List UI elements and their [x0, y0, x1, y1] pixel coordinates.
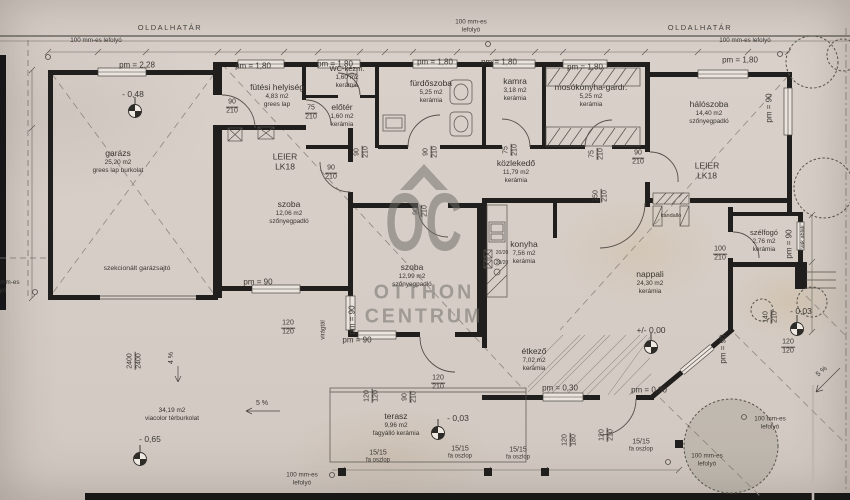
room-floor: fagyálló kerámia	[373, 430, 420, 438]
dim-height: 210	[363, 146, 371, 158]
dim-window-etkezo: 120180	[562, 433, 579, 447]
room-label-wc: WC-kézm.1,60 m2kerámia	[330, 64, 365, 90]
dim-door-mosokonyha: 75210	[589, 148, 606, 160]
dim-opening-terasz: 90210	[402, 391, 419, 403]
parapet-mosokonyha: pm = 1,80	[567, 64, 603, 73]
room-label-kamra: kamra3,18 m2kerámia	[503, 76, 527, 104]
room-area: 5,25 m2	[410, 89, 452, 97]
room-name: mosókonyha-gardr.	[555, 82, 628, 93]
dim-height: 210	[432, 146, 440, 158]
parapet-etkezo-1: pm = 0,30	[542, 385, 578, 394]
level-ground: +/- 0,00	[636, 326, 665, 336]
dim-door-etkezo: 120210	[599, 428, 616, 442]
room-name: garázs	[93, 148, 144, 159]
room-floor: kerámia	[330, 121, 353, 129]
room-label-furdoszoba: fürdőszoba5,25 m2kerámia	[410, 78, 452, 106]
level-terrace: - 0,03	[447, 414, 469, 424]
post-size: 15/15	[366, 450, 390, 458]
wall-note-leier-2: LEIERLK18	[695, 161, 720, 180]
dim-window-szoba2: 120120	[364, 389, 381, 403]
dim-width: 100	[713, 246, 727, 255]
room-area: 3,18 m2	[503, 87, 527, 95]
drain-label-top-right: 100 mm-es lefolyó	[719, 37, 770, 45]
room-name: szoba	[392, 262, 431, 273]
fireplace-label: kandalló	[661, 213, 682, 219]
flower-box-label: virágtál	[321, 320, 328, 339]
room-label-nappali: nappali24,30 m2kerámia	[636, 269, 663, 297]
room-label-futesi: fütési helyiség4,83 m2grees lap	[250, 82, 304, 110]
room-name: konyha	[510, 239, 537, 250]
room-area: 24,30 m2	[636, 280, 663, 288]
dim-height: 210	[608, 428, 616, 442]
slope-4-label: 4 %	[168, 352, 176, 364]
room-name: WC-kézm.	[330, 64, 365, 74]
dim-width: 120	[364, 389, 373, 403]
post-label-4: 15/15fa oszlop	[629, 439, 653, 454]
room-label-garazs: garázs25,20 m2grees lap burkolat	[93, 148, 144, 176]
dim-width: 120	[781, 339, 795, 348]
parapet-nappali-diag: pm = 90	[720, 334, 729, 363]
room-name: nappali	[636, 269, 663, 280]
dim-height: 180	[571, 433, 579, 447]
parapet-futesi: pm = 1,80	[235, 63, 271, 72]
room-label-szelfogo: szélfogó2,76 m2kerámia	[750, 228, 778, 254]
room-label-szoba2: szoba12,99 m2szőnyegpadló	[392, 262, 431, 290]
room-name: szélfogó	[750, 228, 778, 238]
post-label-3: 15/15fa oszlop	[506, 447, 530, 462]
room-area: 12,06 m2	[269, 210, 308, 218]
dim-height: 210	[411, 391, 419, 403]
dim-width: 75	[305, 105, 317, 114]
dim-door-garage-futesi: 90210	[226, 99, 238, 116]
room-floor: viacolor térburkolat	[145, 415, 199, 423]
dim-height: 210	[632, 159, 644, 167]
room-area: 12,99 m2	[392, 273, 431, 281]
room-label-etkezo: étkező7,02 m2kerámia	[521, 346, 546, 374]
post-size: 15/15	[448, 446, 472, 454]
dim-height: 210	[602, 189, 610, 203]
room-name: fütési helyiség	[250, 82, 304, 93]
dim-height: 210	[713, 255, 727, 263]
slope-5-label-left: 5 %	[256, 400, 268, 408]
dim-height: 210	[431, 384, 445, 392]
parapet-kamra: pm = 1,80	[481, 59, 517, 68]
drain-line2: lefolyó	[455, 26, 487, 34]
parapet-haloszoba: pm = 1,80	[722, 57, 758, 66]
post-label-2: 15/15fa oszlop	[448, 446, 472, 461]
dim-height: 210	[772, 310, 780, 324]
dim-width: 90	[226, 99, 238, 108]
room-name: terasz	[373, 411, 420, 422]
dim-width: 2400	[127, 352, 136, 370]
room-name: fürdőszoba	[410, 78, 452, 89]
room-name: előtér	[330, 102, 353, 113]
room-floor: kerámia	[636, 288, 663, 296]
dim-width: 120	[281, 320, 295, 329]
room-area: 25,20 m2	[93, 159, 144, 167]
level-entry: - 0,03	[790, 307, 812, 317]
level-garage: - 0,48	[122, 90, 144, 100]
dim-window-diag: 120120	[781, 339, 795, 356]
room-floor: szőnyegpadló	[269, 218, 308, 226]
blind-window-label: vak ablak	[800, 225, 806, 248]
room-floor: kerámia	[510, 258, 537, 266]
pillar-label-1: 20/20	[496, 251, 509, 257]
drain-label-bottom-left: 100 mm-eslefolyó	[286, 471, 318, 486]
room-floor: grees lap burkolat	[93, 167, 144, 175]
dim-width: 140	[763, 310, 772, 324]
watermark-house-icon	[400, 164, 448, 190]
dim-width: 90	[632, 150, 644, 159]
dim-height: 210	[512, 144, 520, 156]
room-label-eloter: előtér1,60 m2kerámia	[330, 102, 353, 130]
dim-opening-eloter: 90210	[354, 146, 371, 158]
dim-height: 210	[226, 108, 238, 116]
drain-label-top-center: 100 mm-eslefolyó	[455, 18, 487, 33]
parapet-szelfogo: pm = 90	[786, 229, 795, 258]
parapet-furdo: pm = 1,80	[417, 59, 453, 68]
post-size: 15/15	[506, 447, 530, 455]
dim-width: 90	[354, 146, 363, 158]
post-size: 15/15	[629, 439, 653, 447]
parapet-szoba1: pm = 90	[243, 279, 272, 288]
room-area: 7,56 m2	[510, 250, 537, 258]
wall-note-leier-1: LEIERLK18	[273, 152, 298, 171]
room-area: 11,79 m2	[497, 169, 535, 177]
dim-height: 2400	[136, 352, 144, 370]
drain-line1: 100 mm-es	[286, 471, 318, 479]
dim-width: 120	[431, 375, 445, 384]
drain-line2: lefolyó	[0, 287, 20, 295]
drain-line1: 100 mm-es	[455, 18, 487, 26]
room-floor: grees lap	[250, 101, 304, 109]
leier-type: LK18	[695, 171, 720, 181]
room-floor: kerámia	[555, 101, 628, 109]
room-label-terasz: terasz9,96 m2fagyálló kerámia	[373, 411, 420, 439]
dim-door-terasz: 120210	[431, 375, 445, 392]
room-floor: kerámia	[750, 246, 778, 254]
drain-line1: 100 mm-es	[754, 415, 786, 423]
room-floor: kerámia	[410, 97, 452, 105]
room-area: 34,19 m2	[145, 407, 199, 415]
dim-height: 210	[422, 205, 430, 217]
dim-door-furdo: 90210	[423, 146, 440, 158]
dim-height: 210	[305, 114, 317, 122]
dim-garage-door: 24002400	[127, 352, 144, 370]
room-label-szoba1: szoba12,06 m2szőnyegpadló	[269, 199, 308, 227]
dim-height: 120	[373, 389, 381, 403]
parapet-etkezo-2: pm = 0,30	[631, 387, 667, 396]
room-floor: kerámia	[497, 177, 535, 185]
dim-width: 90	[413, 205, 422, 217]
drain-label-left: 100 mm-eslefolyó	[0, 279, 20, 294]
dim-height: 120	[281, 329, 295, 337]
room-area: 4,83 m2	[250, 93, 304, 101]
dim-height: 210	[598, 148, 606, 160]
dim-width: 90	[423, 146, 432, 158]
room-floor: kerámia	[521, 365, 546, 373]
parapet-szoba2-west: pm = 90	[349, 305, 358, 334]
room-floor: szőnyegpadló	[689, 118, 728, 126]
dim-height: 120	[781, 348, 795, 356]
boundary-label-right: OLDALHATÁR	[668, 24, 732, 32]
room-area: 7,02 m2	[521, 357, 546, 365]
room-name: hálószoba	[689, 99, 728, 110]
post-type: fa oszlop	[366, 458, 390, 465]
room-area: 14,40 m2	[689, 110, 728, 118]
dim-width: 150	[593, 189, 602, 203]
pillar-label-2: 20/20	[496, 261, 509, 267]
room-label-mosokonyha: mosókonyha-gardr.5,25 m2kerámia	[555, 82, 628, 110]
dim-door-kamra: 75210	[503, 144, 520, 156]
dim-door-szoba2: 90210	[413, 205, 430, 217]
dim-width: 90	[325, 165, 337, 174]
room-name: étkező	[521, 346, 546, 357]
drain-line1: 100 mm-es	[691, 452, 723, 460]
drain-label-bottom-right-1: 100 mm-eslefolyó	[754, 415, 786, 430]
parapet-garage: pm = 2,28	[119, 62, 155, 71]
dim-width: 120	[562, 433, 571, 447]
dim-width: 75	[589, 148, 598, 160]
room-label-konyha: konyha7,56 m2kerámia	[510, 239, 537, 267]
post-type: fa oszlop	[506, 455, 530, 462]
post-label-1: 15/15fa oszlop	[366, 450, 390, 465]
post-type: fa oszlop	[448, 454, 472, 461]
parapet-halo-east: pm = 90	[766, 93, 775, 122]
parapet-szoba2: pm = 90	[342, 337, 371, 346]
room-label-haloszoba: hálószoba14,40 m2szőnyegpadló	[689, 99, 728, 127]
drain-line2: lefolyó	[754, 423, 786, 431]
drain-line1: 100 mm-es	[0, 279, 20, 287]
room-floor: kerámia	[503, 95, 527, 103]
dim-opening-nappali: 150210	[593, 189, 610, 203]
room-area: 9,96 m2	[373, 422, 420, 430]
drain-line2: lefolyó	[691, 460, 723, 468]
room-label-kozlekedo: közlekedő11,79 m2kerámia	[497, 158, 535, 186]
room-name: közlekedő	[497, 158, 535, 169]
room-area: 1,60 m2	[330, 113, 353, 121]
drain-line2: lefolyó	[286, 479, 318, 487]
boundary-label-left: OLDALHATÁR	[138, 24, 202, 32]
room-label-udvar: 34,19 m2viacolor térburkolat	[145, 407, 199, 424]
room-area: 1,60 m2	[330, 74, 365, 82]
room-floor: szőnyegpadló	[392, 281, 431, 289]
dim-door-szelfogo: 100210	[713, 246, 727, 263]
room-name: kamra	[503, 76, 527, 87]
drain-label-top-left: 100 mm-es lefolyó	[70, 37, 121, 45]
dim-door-szoba1: 90210	[325, 165, 337, 182]
post-type: fa oszlop	[629, 447, 653, 454]
leier-type: LK18	[273, 162, 298, 172]
level-yard: - 0,65	[139, 435, 161, 445]
floor-plan-page: OLDALHATÁR OLDALHATÁR 100 mm-es lefolyó …	[0, 0, 850, 500]
dim-door-futesi: 75210	[305, 105, 317, 122]
dim-door-entry: 140210	[763, 310, 780, 324]
dim-width: 120	[599, 428, 608, 442]
garage-door-label: szekcionált garázsajtó	[104, 265, 171, 273]
dim-door-haloszoba: 90210	[632, 150, 644, 167]
drain-label-bottom-right-2: 100 mm-eslefolyó	[691, 452, 723, 467]
dim-window-szoba1: 120120	[281, 320, 295, 337]
room-name: szoba	[269, 199, 308, 210]
dim-height: 210	[325, 174, 337, 182]
dim-width: 90	[402, 391, 411, 403]
room-area: 5,25 m2	[555, 93, 628, 101]
room-floor: kerámia	[330, 82, 365, 90]
room-area: 2,76 m2	[750, 238, 778, 246]
dim-width: 75	[503, 144, 512, 156]
